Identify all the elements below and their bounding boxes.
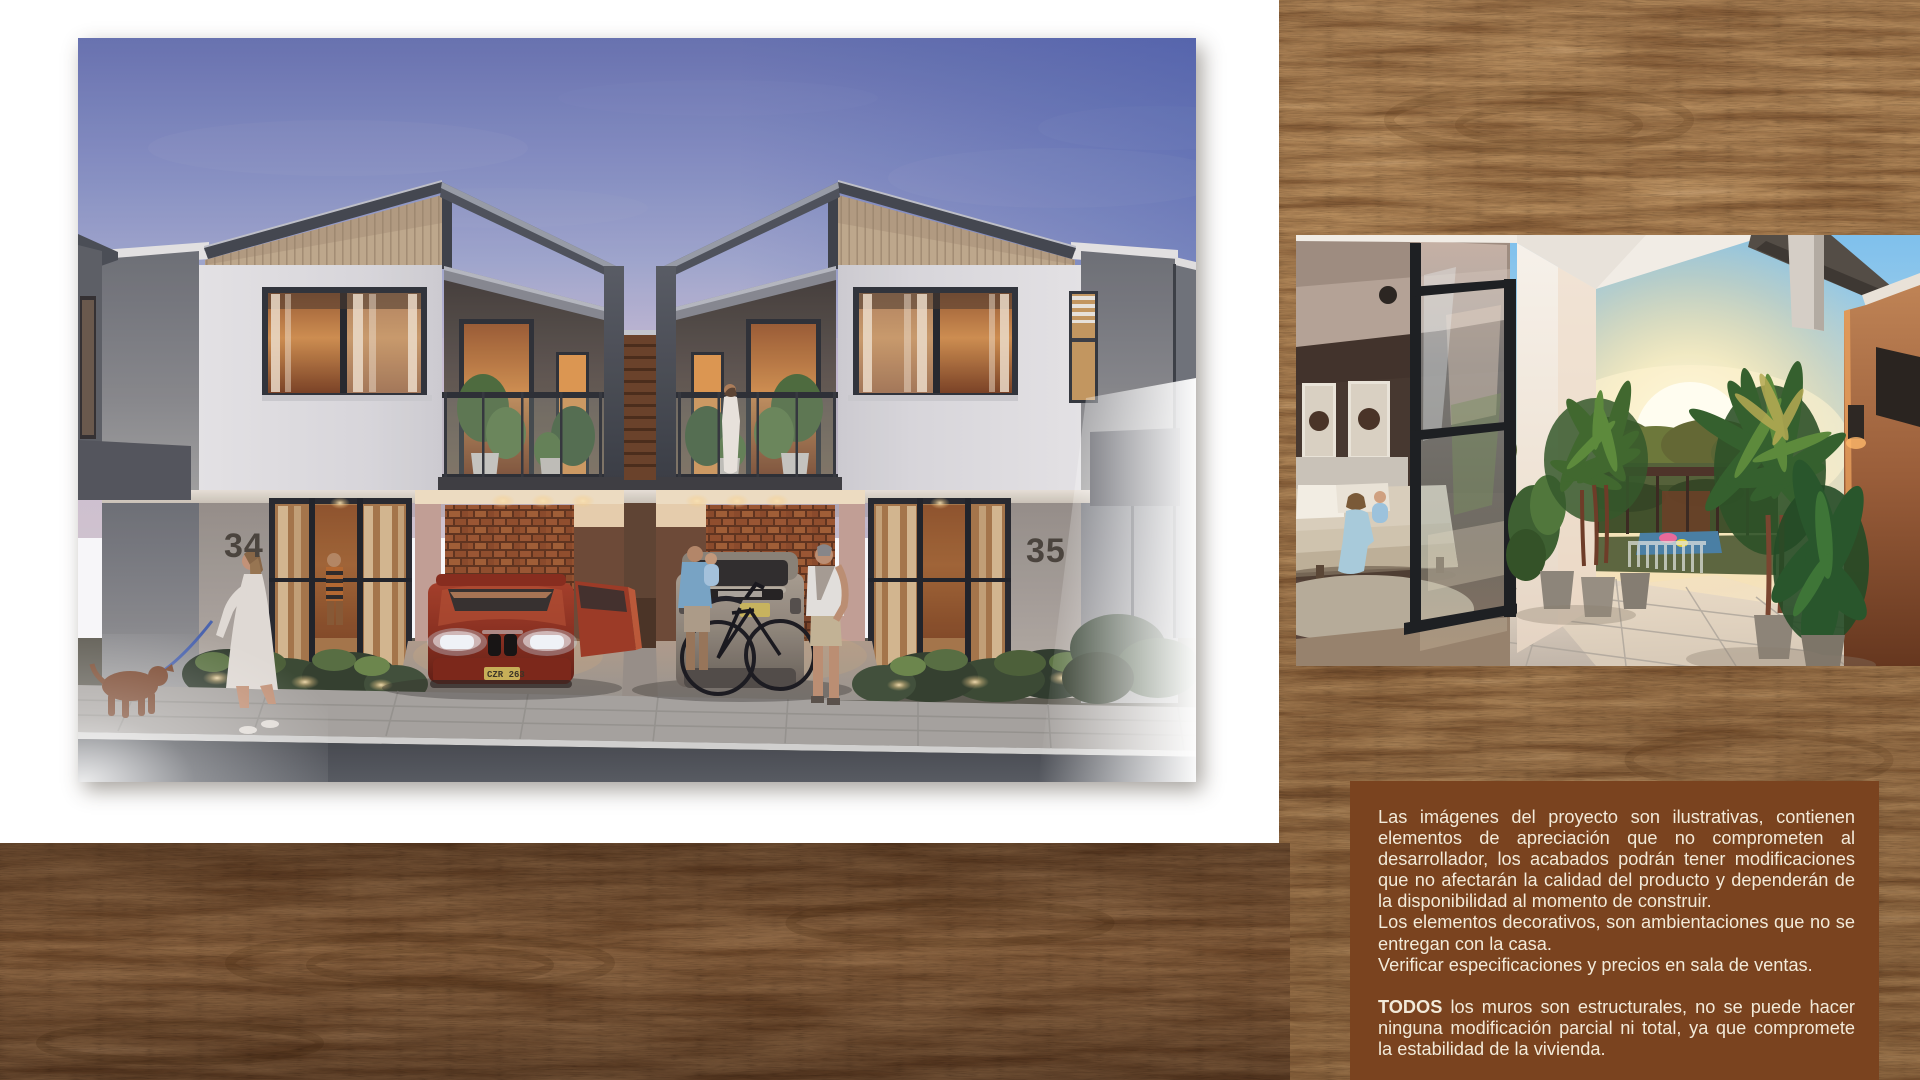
svg-text:34: 34 xyxy=(224,527,264,565)
svg-text:35: 35 xyxy=(1026,532,1066,570)
